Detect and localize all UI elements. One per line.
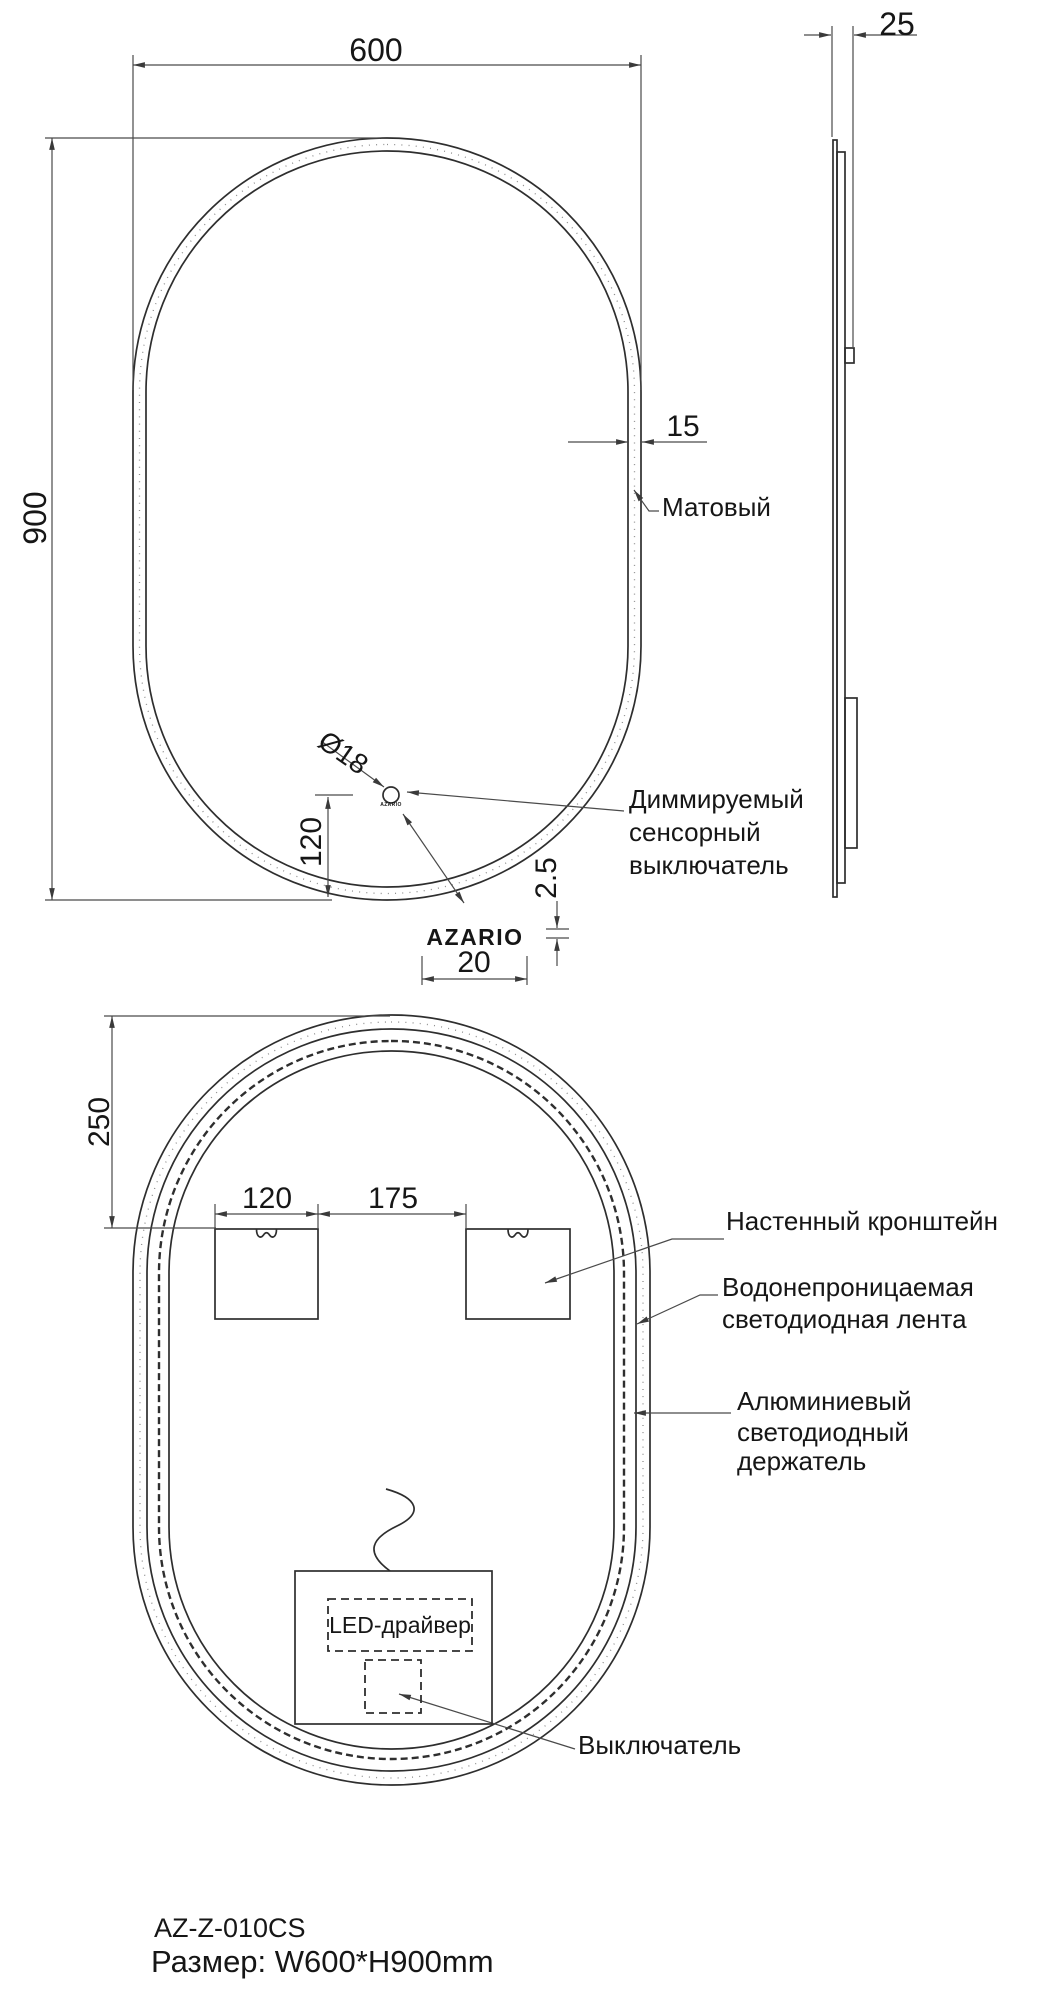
wall-bracket-right xyxy=(466,1229,570,1319)
logo-height-label: 2.5 xyxy=(530,843,560,913)
bracket-keyhole xyxy=(257,1229,277,1237)
bracket-label: Настенный кронштейн xyxy=(726,1206,998,1237)
model-code: AZ-Z-010CS xyxy=(154,1913,306,1944)
dim-depth-label: 25 xyxy=(874,6,920,43)
bracket-body xyxy=(466,1229,570,1319)
power-cable xyxy=(374,1489,414,1571)
size-line: Размер: W600*H900mm xyxy=(151,1944,494,1980)
dimension-depth-25 xyxy=(804,26,917,347)
frosted-edge-texture xyxy=(140,145,635,894)
mirror-inner-outline xyxy=(146,151,628,887)
back-outer-outline xyxy=(133,1015,650,1785)
dimension-height-900 xyxy=(45,138,380,900)
touch-sensor-circle xyxy=(383,787,399,803)
led-strip-label-line2: светодиодная лента xyxy=(722,1304,967,1335)
dimension-width-600 xyxy=(133,55,641,390)
logo-detail-leader xyxy=(403,814,464,903)
holder-label-line2: светодиодный xyxy=(737,1417,909,1448)
drawing-canvas xyxy=(0,0,1042,2000)
switch-label: Выключатель xyxy=(578,1730,741,1761)
side-view xyxy=(804,26,917,897)
azario-logo-small: AZARIO xyxy=(375,802,407,808)
logo-width-label: 20 xyxy=(446,946,502,980)
back-edge-texture xyxy=(140,1022,643,1778)
matte-label: Матовый xyxy=(662,492,771,523)
wall-bracket-profile xyxy=(845,348,854,363)
dim-edge-label: 15 xyxy=(660,410,706,444)
bracket-body xyxy=(215,1229,318,1319)
dimmable-label-line1: Диммируемый xyxy=(629,784,804,815)
dimmable-switch-leader xyxy=(407,792,624,811)
dim-height-label: 900 xyxy=(17,470,47,566)
technical-drawing-page: 600 900 15 Матовый Ø18 120 2.5 20 AZARIO… xyxy=(0,0,1042,2000)
dim-width-label: 600 xyxy=(340,32,412,69)
led-strip-label-line1: Водонепроницаемая xyxy=(722,1272,974,1303)
led-holder-profile xyxy=(837,152,845,883)
back-view xyxy=(104,1015,731,1785)
dim-top-offset-label: 250 xyxy=(83,1077,113,1167)
mirror-outer-outline xyxy=(133,138,641,900)
driver-box-profile xyxy=(845,698,857,848)
led-driver-label: LED-драйвер xyxy=(328,1612,472,1639)
bracket-keyhole xyxy=(508,1229,528,1237)
front-view xyxy=(45,55,707,985)
junction-box xyxy=(295,1571,492,1724)
dim-bracket-gap-label: 175 xyxy=(363,1182,423,1216)
holder-label-line3: держатель xyxy=(737,1446,866,1477)
sensor-offset-label: 120 xyxy=(295,797,325,887)
back-inner-outline xyxy=(169,1051,614,1749)
switch-leader-line xyxy=(399,1694,575,1749)
wall-bracket-left xyxy=(215,1229,318,1319)
dim-bracket-width-label: 120 xyxy=(238,1182,296,1216)
dimmable-label-line2: сенсорный xyxy=(629,817,761,848)
dimmable-label-line3: выключатель xyxy=(629,850,789,881)
azario-logo-large: AZARIO xyxy=(421,924,529,951)
matte-leader-line xyxy=(634,490,659,511)
holder-label-line1: Алюминиевый xyxy=(737,1386,911,1417)
switch-box xyxy=(365,1660,421,1713)
